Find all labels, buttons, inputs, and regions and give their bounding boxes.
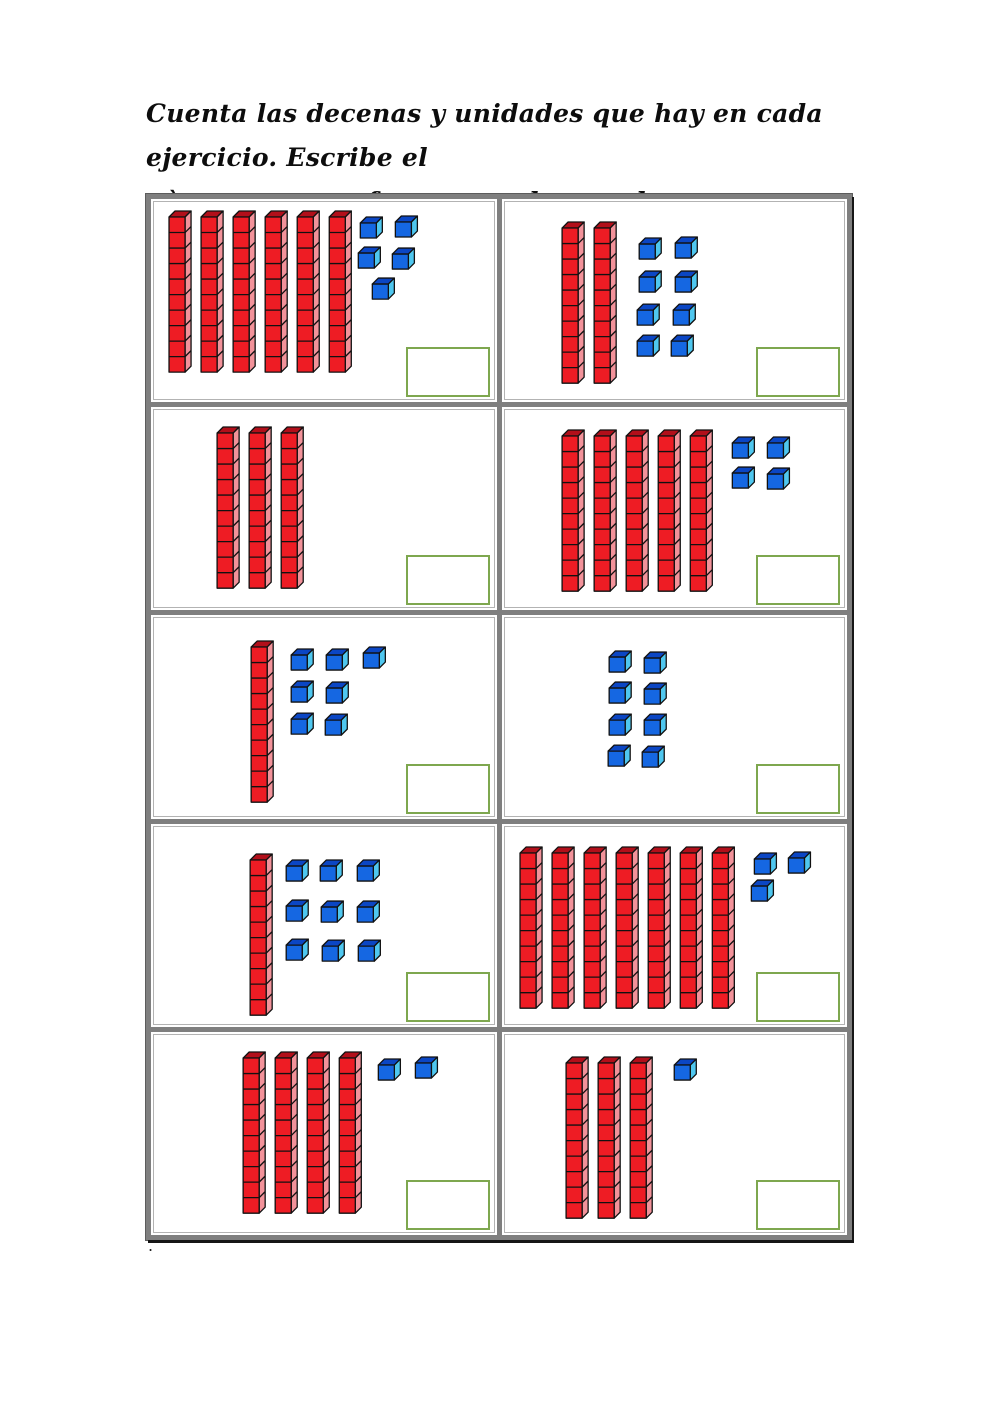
tens-rod — [584, 847, 606, 1008]
tens-rod — [243, 1052, 265, 1213]
worksheet-grid — [146, 194, 852, 1240]
unit-cube — [326, 649, 348, 670]
unit-cube — [325, 714, 347, 735]
tens-rod — [520, 847, 542, 1008]
tens-rod — [201, 211, 223, 372]
unit-cube — [639, 238, 661, 259]
tens-rod — [562, 222, 584, 383]
unit-cube — [360, 217, 382, 238]
tens-rod — [250, 854, 272, 1015]
unit-cube — [291, 649, 313, 670]
unit-cube — [732, 437, 754, 458]
tens-rod — [169, 211, 191, 372]
tens-rod — [297, 211, 319, 372]
exercise-cell-8 — [502, 824, 848, 1027]
answer-input[interactable] — [756, 972, 840, 1022]
unit-cube — [291, 713, 313, 734]
unit-cube — [732, 467, 754, 488]
unit-cube — [767, 468, 789, 489]
tens-rod — [690, 430, 712, 591]
unit-cube — [767, 437, 789, 458]
tens-rod — [562, 430, 584, 591]
unit-cube — [788, 852, 810, 873]
exercise-cell-6 — [502, 615, 848, 818]
tens-rod — [275, 1052, 297, 1213]
unit-cube — [609, 651, 631, 672]
stray-period: . — [148, 1236, 153, 1255]
exercise-cell-4 — [502, 407, 848, 610]
tens-rod — [265, 211, 287, 372]
answer-input[interactable] — [756, 555, 840, 605]
unit-cube — [378, 1059, 400, 1080]
unit-cube — [675, 271, 697, 292]
answer-input[interactable] — [406, 1180, 490, 1230]
unit-cube — [286, 939, 308, 960]
tens-rod — [329, 211, 351, 372]
unit-cube — [372, 278, 394, 299]
unit-cube — [673, 304, 695, 325]
answer-input[interactable] — [406, 555, 490, 605]
exercise-cell-5 — [151, 615, 497, 818]
unit-cube — [674, 1059, 696, 1080]
unit-cube — [754, 853, 776, 874]
answer-input[interactable] — [406, 764, 490, 814]
unit-cube — [637, 304, 659, 325]
tens-rod — [251, 641, 273, 802]
tens-rod — [598, 1057, 620, 1218]
exercise-cell-3 — [151, 407, 497, 610]
exercise-cell-1 — [151, 199, 497, 402]
tens-rod — [594, 430, 616, 591]
unit-cube — [609, 714, 631, 735]
unit-cube — [644, 652, 666, 673]
exercise-cell-9 — [151, 1032, 497, 1235]
unit-cube — [392, 248, 414, 269]
tens-rod — [658, 430, 680, 591]
tens-rod — [594, 222, 616, 383]
instructions-line-1: Cuenta las decenas y unidades que hay en… — [146, 92, 886, 180]
tens-rod — [552, 847, 574, 1008]
unit-cube — [291, 681, 313, 702]
tens-rod — [616, 847, 638, 1008]
tens-rod — [626, 430, 648, 591]
unit-cube — [322, 940, 344, 961]
unit-cube — [642, 747, 664, 768]
exercise-cell-2 — [502, 199, 848, 402]
tens-rod — [233, 211, 255, 372]
answer-input[interactable] — [756, 347, 840, 397]
tens-rod — [630, 1057, 652, 1218]
tens-rod — [281, 427, 303, 588]
unit-cube — [415, 1057, 437, 1078]
unit-cube — [644, 683, 666, 704]
worksheet-page: Cuenta las decenas y unidades que hay en… — [0, 0, 1000, 1413]
unit-cube — [286, 860, 308, 881]
answer-input[interactable] — [406, 972, 490, 1022]
unit-cube — [320, 860, 342, 881]
unit-cube — [751, 880, 773, 901]
tens-rod — [217, 427, 239, 588]
unit-cube — [321, 901, 343, 922]
tens-rod — [339, 1052, 361, 1213]
tens-rod — [712, 847, 734, 1008]
unit-cube — [644, 714, 666, 735]
unit-cube — [358, 940, 380, 961]
tens-rod — [680, 847, 702, 1008]
unit-cube — [286, 900, 308, 921]
unit-cube — [357, 901, 379, 922]
unit-cube — [395, 216, 417, 237]
unit-cube — [363, 647, 385, 668]
exercise-cell-10 — [502, 1032, 848, 1235]
unit-cube — [639, 271, 661, 292]
answer-input[interactable] — [406, 347, 490, 397]
unit-cube — [609, 682, 631, 703]
unit-cube — [675, 237, 697, 258]
exercise-cell-7 — [151, 824, 497, 1027]
answer-input[interactable] — [756, 1180, 840, 1230]
unit-cube — [637, 335, 659, 356]
tens-rod — [249, 427, 271, 588]
tens-rod — [648, 847, 670, 1008]
unit-cube — [608, 746, 630, 767]
unit-cube — [358, 247, 380, 268]
tens-rod — [307, 1052, 329, 1213]
answer-input[interactable] — [756, 764, 840, 814]
unit-cube — [671, 335, 693, 356]
unit-cube — [326, 682, 348, 703]
tens-rod — [566, 1057, 588, 1218]
unit-cube — [357, 860, 379, 881]
